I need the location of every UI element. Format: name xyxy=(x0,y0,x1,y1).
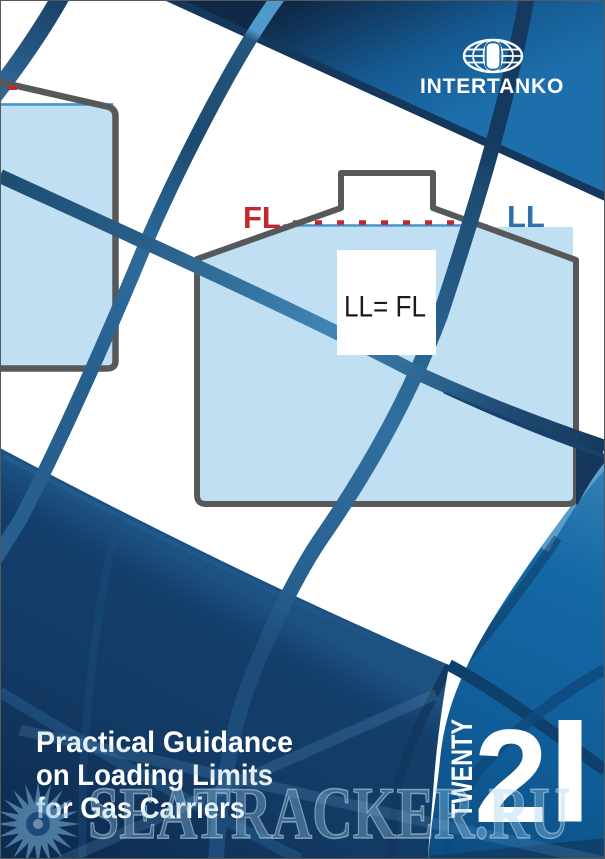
svg-text:LL: LL xyxy=(507,199,545,234)
svg-text:SEATRACKER.RU: SEATRACKER.RU xyxy=(88,773,570,855)
svg-text:FL: FL xyxy=(243,200,281,235)
svg-text:LL= FL: LL= FL xyxy=(344,291,426,324)
svg-text:INTERTANKO: INTERTANKO xyxy=(420,75,564,98)
